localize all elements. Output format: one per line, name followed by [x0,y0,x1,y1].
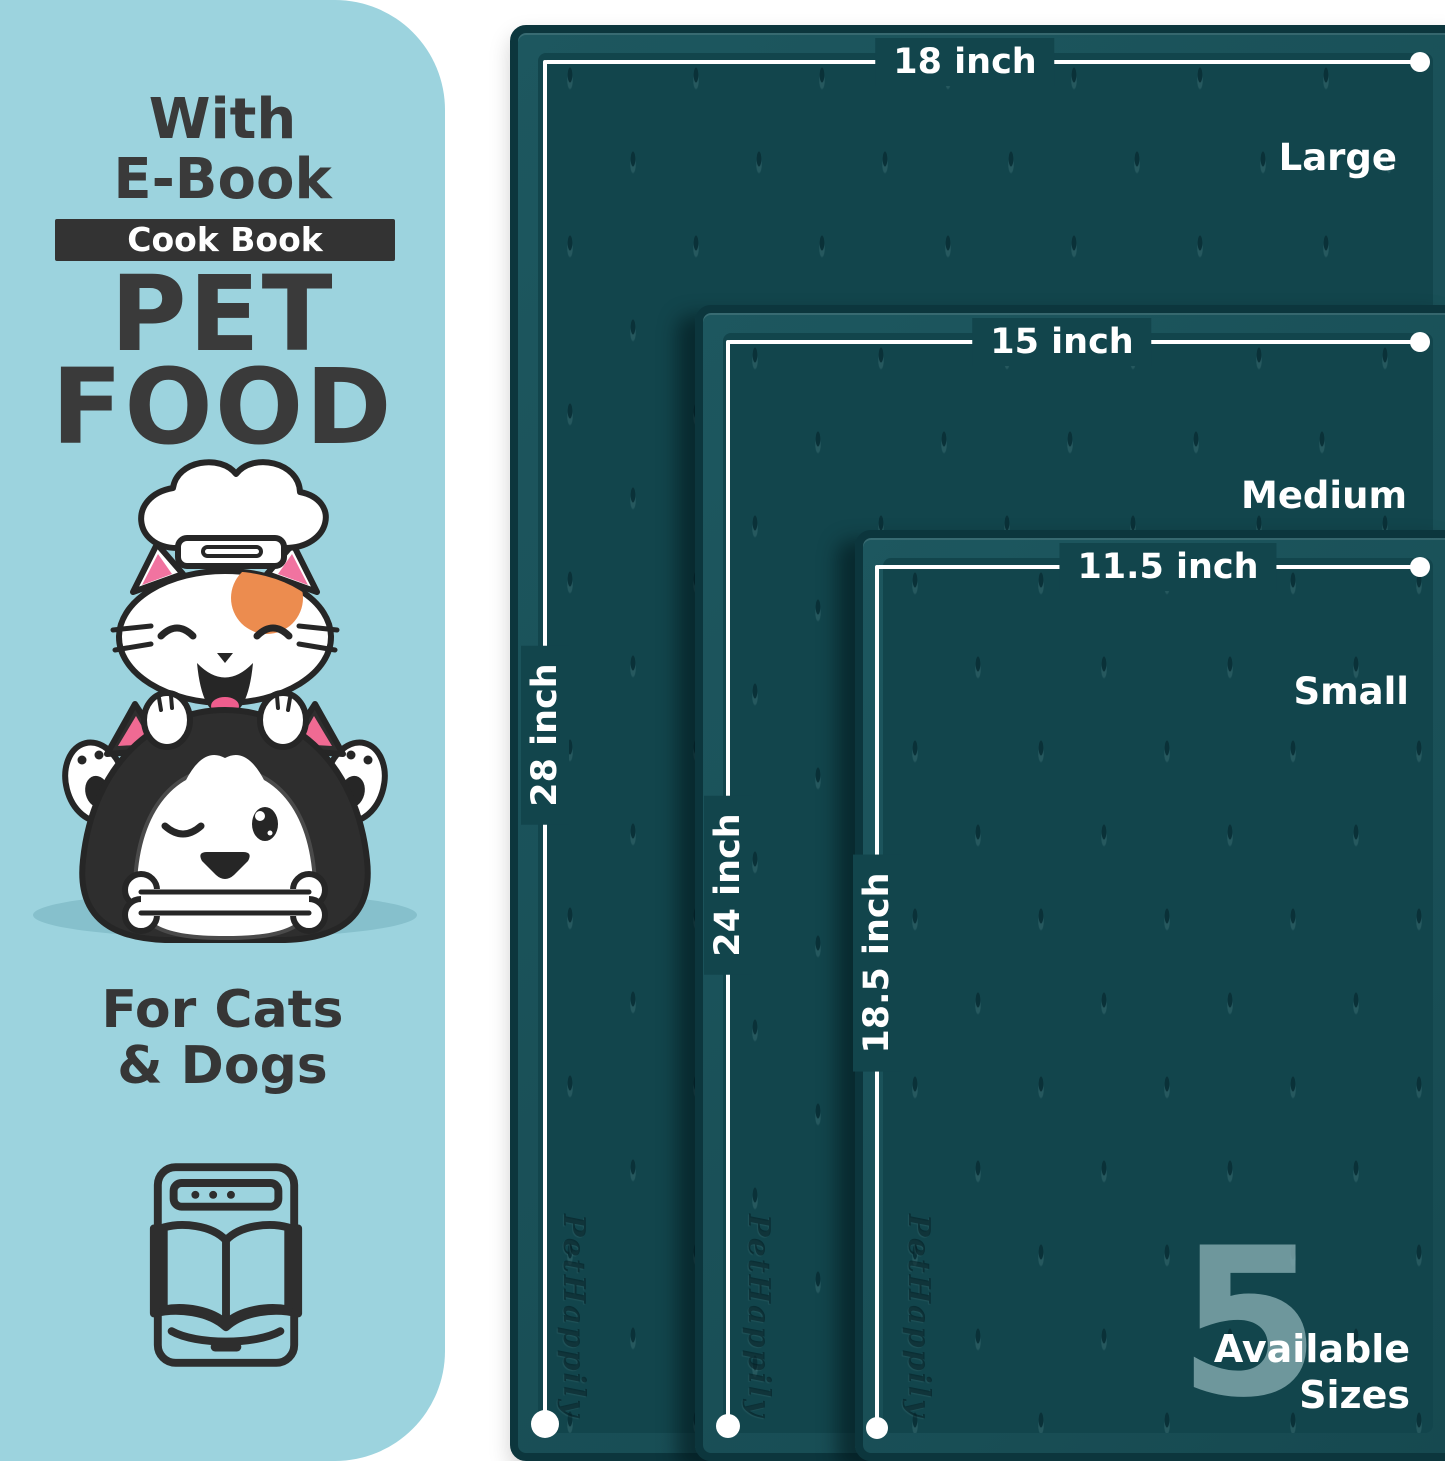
audience-line1: For Cats [0,982,445,1038]
dim-height-label-medium: 24 inch [704,795,752,974]
embossed-brand-text: PetHappily [741,1214,776,1419]
embossed-brand-text: PetHappily [556,1214,591,1419]
cat-paw-right [260,693,306,747]
dim-height-label-small: 18.5 inch [853,854,901,1071]
dim-height-label-large: 28 inch [521,645,569,824]
available-sizes-text: Available Sizes [1214,1326,1410,1418]
cat-paw-left [144,693,190,747]
dim-width-label-large: 18 inch [875,38,1054,86]
size-name-large: Large [1279,136,1397,179]
dim-width-label-small: 11.5 inch [1059,543,1276,591]
left-info-panel: With E-Book Cook Book PET FOOD [0,0,445,1461]
audience-text: For Cats & Dogs [0,982,445,1094]
dimension-endpoint-dot [531,1410,559,1438]
dimension-endpoint-dot [1410,557,1430,577]
size-name-medium: Medium [1241,474,1407,517]
product-title-line2: FOOD [0,361,445,454]
cat-dog-chef-illustration [15,452,435,957]
available-sizes-line1: Available [1214,1326,1410,1372]
ebook-icon [142,1160,310,1372]
dim-width-label-medium: 15 inch [972,318,1151,366]
with-ebook-text: With E-Book [0,90,445,210]
embossed-brand-text: PetHappily [901,1214,936,1419]
size-name-small: Small [1293,670,1409,713]
dimension-endpoint-dot [1410,332,1430,352]
available-sizes-line2: Sizes [1214,1372,1410,1418]
product-title: PET FOOD [0,268,445,454]
dimension-endpoint-dot [716,1414,740,1438]
dimension-endpoint-dot [866,1417,888,1439]
with-ebook-line1: With [0,90,445,150]
dimension-endpoint-dot [1410,52,1430,72]
product-size-infographic: With E-Book Cook Book PET FOOD [0,0,1445,1461]
with-ebook-line2: E-Book [0,150,445,210]
audience-line2: & Dogs [0,1038,445,1094]
